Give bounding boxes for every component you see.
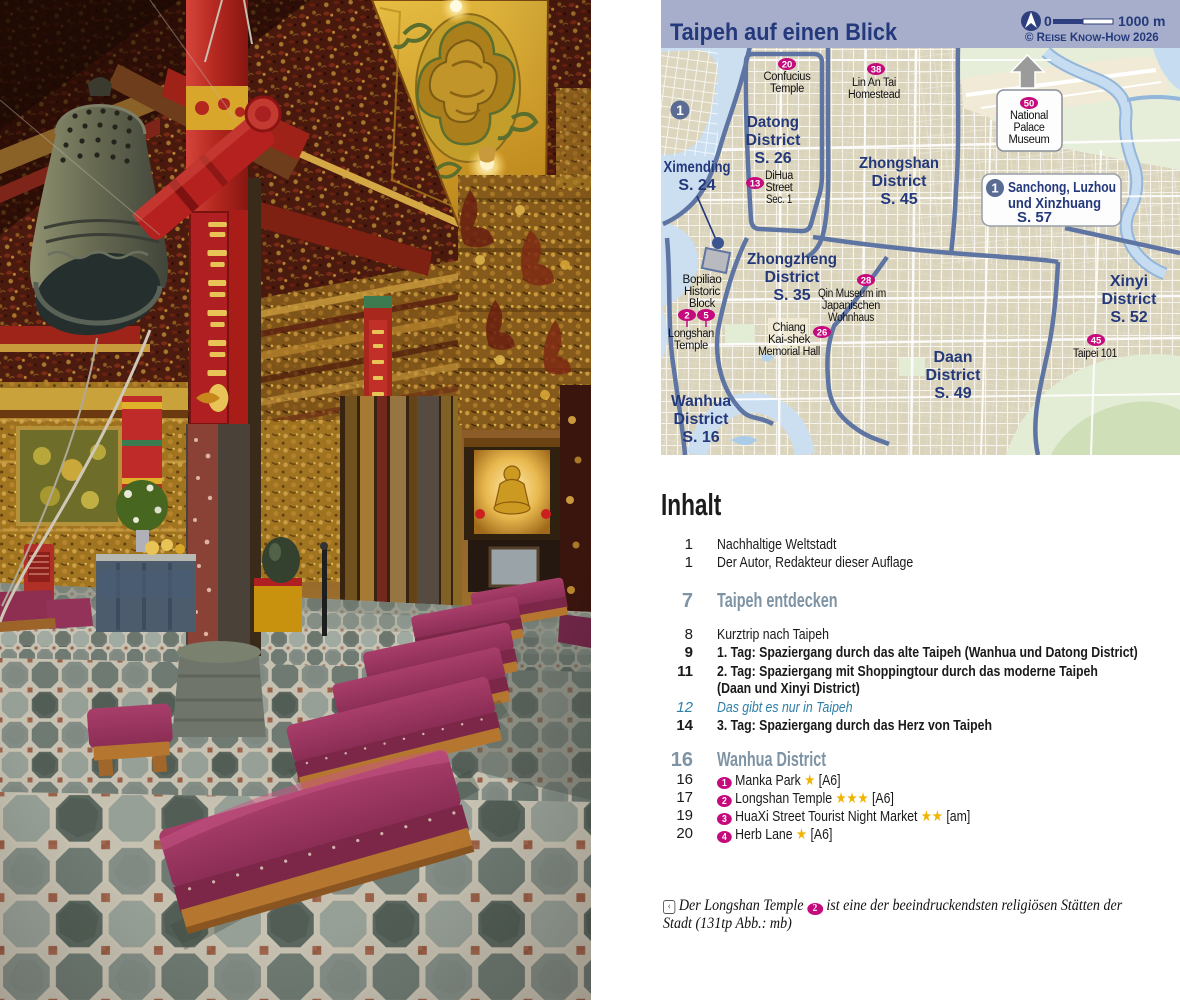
svg-text:Confucius: Confucius	[764, 71, 812, 83]
svg-text:Chiang: Chiang	[773, 322, 806, 334]
svg-text:1: 1	[991, 181, 998, 196]
svg-text:Lin An Tai: Lin An Tai	[852, 77, 896, 89]
svg-text:S. 52: S. 52	[1110, 309, 1147, 326]
svg-text:1000 m: 1000 m	[1118, 13, 1165, 29]
svg-text:District: District	[765, 269, 821, 286]
svg-text:S. 24: S. 24	[678, 177, 715, 194]
svg-text:Museum: Museum	[1009, 134, 1050, 146]
svg-text:Longshan: Longshan	[668, 328, 714, 340]
svg-text:Taipei 101: Taipei 101	[1073, 348, 1117, 360]
svg-text:5: 5	[703, 311, 709, 322]
svg-text:Palace: Palace	[1014, 122, 1045, 134]
svg-text:Historic: Historic	[684, 286, 721, 298]
svg-text:Qin Museum im: Qin Museum im	[818, 288, 886, 300]
svg-text:Bopiliao: Bopiliao	[683, 274, 722, 286]
svg-text:Zhongshan: Zhongshan	[859, 155, 939, 172]
svg-text:S. 26: S. 26	[754, 150, 791, 167]
svg-text:20: 20	[782, 60, 793, 71]
svg-text:DiHua: DiHua	[765, 170, 794, 182]
svg-text:26: 26	[817, 328, 828, 339]
svg-text:Daan: Daan	[933, 349, 972, 366]
svg-text:45: 45	[1091, 336, 1102, 347]
svg-text:S. 16: S. 16	[682, 429, 719, 446]
svg-text:S. 35: S. 35	[773, 287, 810, 304]
svg-text:13: 13	[750, 179, 761, 190]
svg-text:Ximending: Ximending	[664, 159, 731, 176]
svg-text:28: 28	[861, 276, 872, 287]
svg-text:Xinyi: Xinyi	[1110, 273, 1148, 290]
svg-text:Sec. 1: Sec. 1	[766, 194, 792, 206]
svg-text:1: 1	[676, 102, 684, 118]
svg-text:38: 38	[871, 65, 882, 76]
svg-text:District: District	[926, 367, 982, 384]
svg-text:S. 45: S. 45	[880, 191, 917, 208]
svg-text:Japanischen: Japanischen	[822, 300, 880, 312]
svg-text:National: National	[1010, 110, 1048, 122]
svg-text:© REISE KNOW-HOW 2026: © REISE KNOW-HOW 2026	[1025, 32, 1159, 44]
svg-text:Datong: Datong	[747, 114, 799, 131]
svg-text:Street: Street	[766, 182, 794, 194]
svg-text:Taipeh auf einen Blick: Taipeh auf einen Blick	[670, 19, 898, 46]
svg-text:District: District	[872, 173, 928, 190]
svg-text:Kai-shek: Kai-shek	[768, 334, 811, 346]
svg-text:S. 57: S. 57	[1017, 209, 1052, 226]
svg-text:Homestead: Homestead	[848, 89, 900, 101]
svg-text:50: 50	[1024, 99, 1035, 110]
svg-text:S. 49: S. 49	[934, 385, 971, 402]
svg-text:Memorial Hall: Memorial Hall	[758, 346, 820, 358]
svg-text:Block: Block	[689, 298, 716, 310]
svg-text:District: District	[1102, 291, 1158, 308]
svg-text:Wohnhaus: Wohnhaus	[828, 312, 874, 324]
svg-text:Temple: Temple	[770, 83, 804, 95]
svg-text:Temple: Temple	[674, 340, 708, 352]
svg-text:Sanchong, Luzhou: Sanchong, Luzhou	[1008, 179, 1116, 196]
svg-text:0: 0	[1044, 13, 1052, 29]
svg-text:District: District	[674, 411, 730, 428]
svg-text:Wanhua: Wanhua	[671, 393, 731, 410]
svg-text:District: District	[746, 132, 802, 149]
svg-text:Zhongzheng: Zhongzheng	[747, 251, 837, 268]
svg-text:2: 2	[684, 311, 689, 322]
